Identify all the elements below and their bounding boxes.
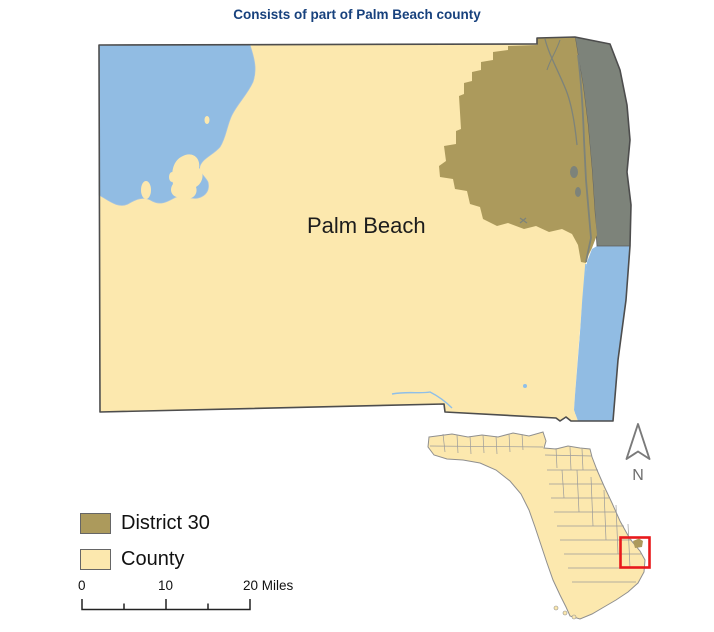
scale-label-0: 0 <box>78 578 86 593</box>
legend-item-district: District 30 <box>80 512 210 535</box>
legend-label-district: District 30 <box>121 512 210 535</box>
legend-label-county: County <box>121 548 184 571</box>
scale-bar-ticks <box>76 598 266 612</box>
florida-keys-dot <box>554 606 558 610</box>
legend-swatch-district <box>80 513 111 534</box>
map-page: Consists of part of Palm Beach county <box>0 0 714 632</box>
map-canvas: N <box>0 0 714 632</box>
county-name-label: Palm Beach <box>307 213 426 239</box>
gray-pond2 <box>575 187 581 197</box>
legend-swatch-county <box>80 549 111 570</box>
scale-bar: 0 10 20 Miles <box>76 578 316 614</box>
north-arrow-icon <box>627 424 650 459</box>
florida-keys-dot <box>572 615 576 619</box>
florida-outline <box>428 432 645 619</box>
florida-keys-dot <box>563 611 567 615</box>
north-arrow-label: N <box>632 467 644 484</box>
scale-label-10: 10 <box>158 578 173 593</box>
legend-item-county: County <box>80 548 184 571</box>
north-arrow: N <box>627 424 650 484</box>
lake-island-tiny2 <box>205 116 210 124</box>
lake-island-small <box>141 181 151 199</box>
florida-inset <box>428 432 650 619</box>
scale-label-20: 20 Miles <box>243 578 293 593</box>
lake-island-tiny <box>169 172 175 182</box>
gray-pond <box>570 166 578 178</box>
pond-dot <box>523 384 527 388</box>
